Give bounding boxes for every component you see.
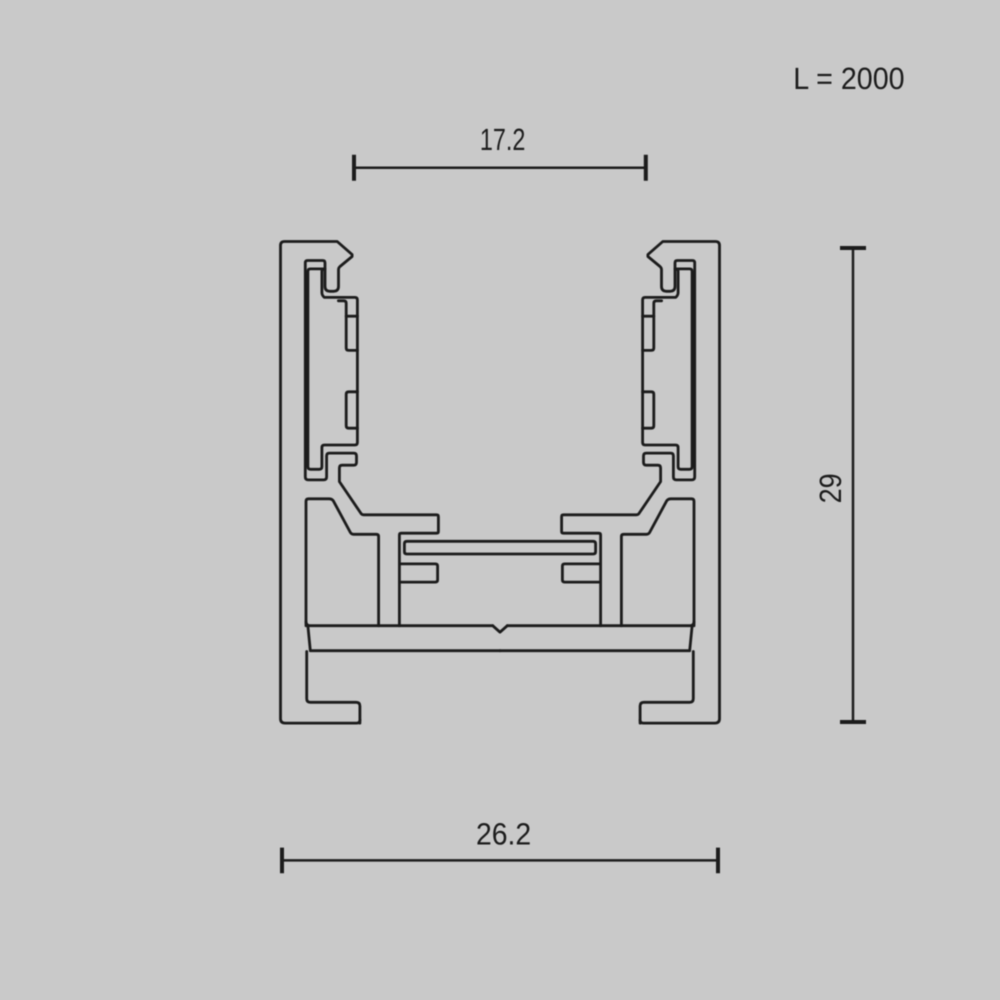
svg-text:17.2: 17.2 <box>480 122 526 157</box>
svg-text:L = 2000: L = 2000 <box>793 61 904 96</box>
svg-text:29: 29 <box>813 473 848 503</box>
svg-text:26.2: 26.2 <box>476 817 531 852</box>
